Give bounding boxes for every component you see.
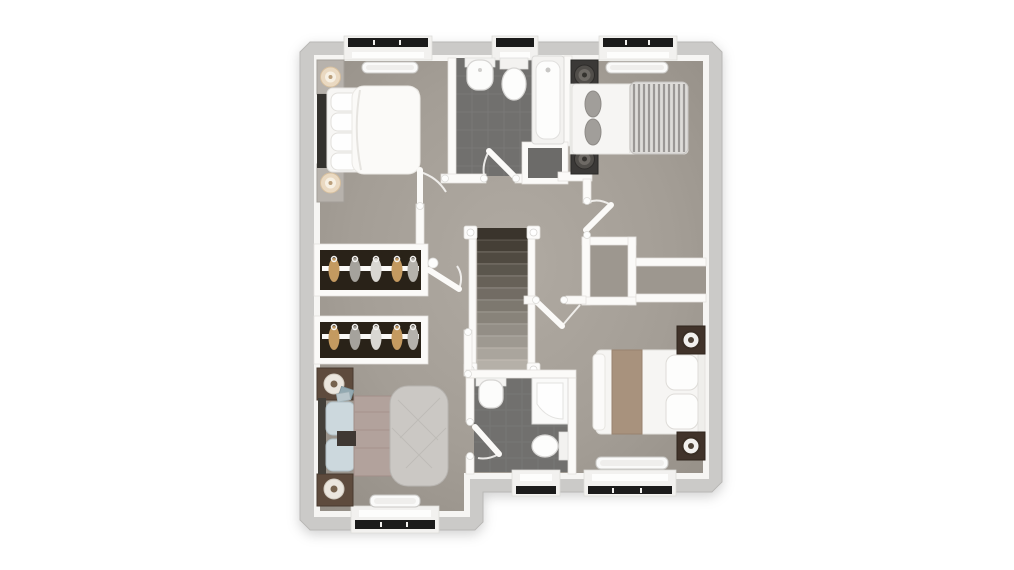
window-sill [352,52,424,58]
room-dressing-area [317,244,457,364]
room-cupboard-1 [582,237,636,305]
room-bedroom-4 [535,302,706,476]
window-sill [500,52,530,58]
floor-plan-page [0,0,1014,570]
window-glazing [348,38,428,47]
window-glazing [516,486,556,494]
window-glazing [496,38,534,47]
room-bathroom-1 [456,58,564,184]
room-bedroom-3 [317,360,465,514]
window-mullion [380,522,382,527]
window-glazing [603,38,673,47]
window-mullion [373,40,375,45]
room-stairs [464,226,540,378]
window-mullion [406,522,408,527]
window-mullion [648,40,650,45]
window-mullion [612,488,614,493]
window-mullion [625,40,627,45]
window-mullion [399,40,401,45]
room-overlay-layer [317,58,706,514]
room-cupboard-2 [634,258,706,302]
window-glazing [355,520,435,529]
wall-bathroom-1-left [448,58,456,176]
window-glazing [588,486,672,494]
floorplan-svg [0,0,1014,570]
room-bedroom-2 [572,58,706,266]
window-mullion [640,488,642,493]
window-sill [607,52,669,58]
